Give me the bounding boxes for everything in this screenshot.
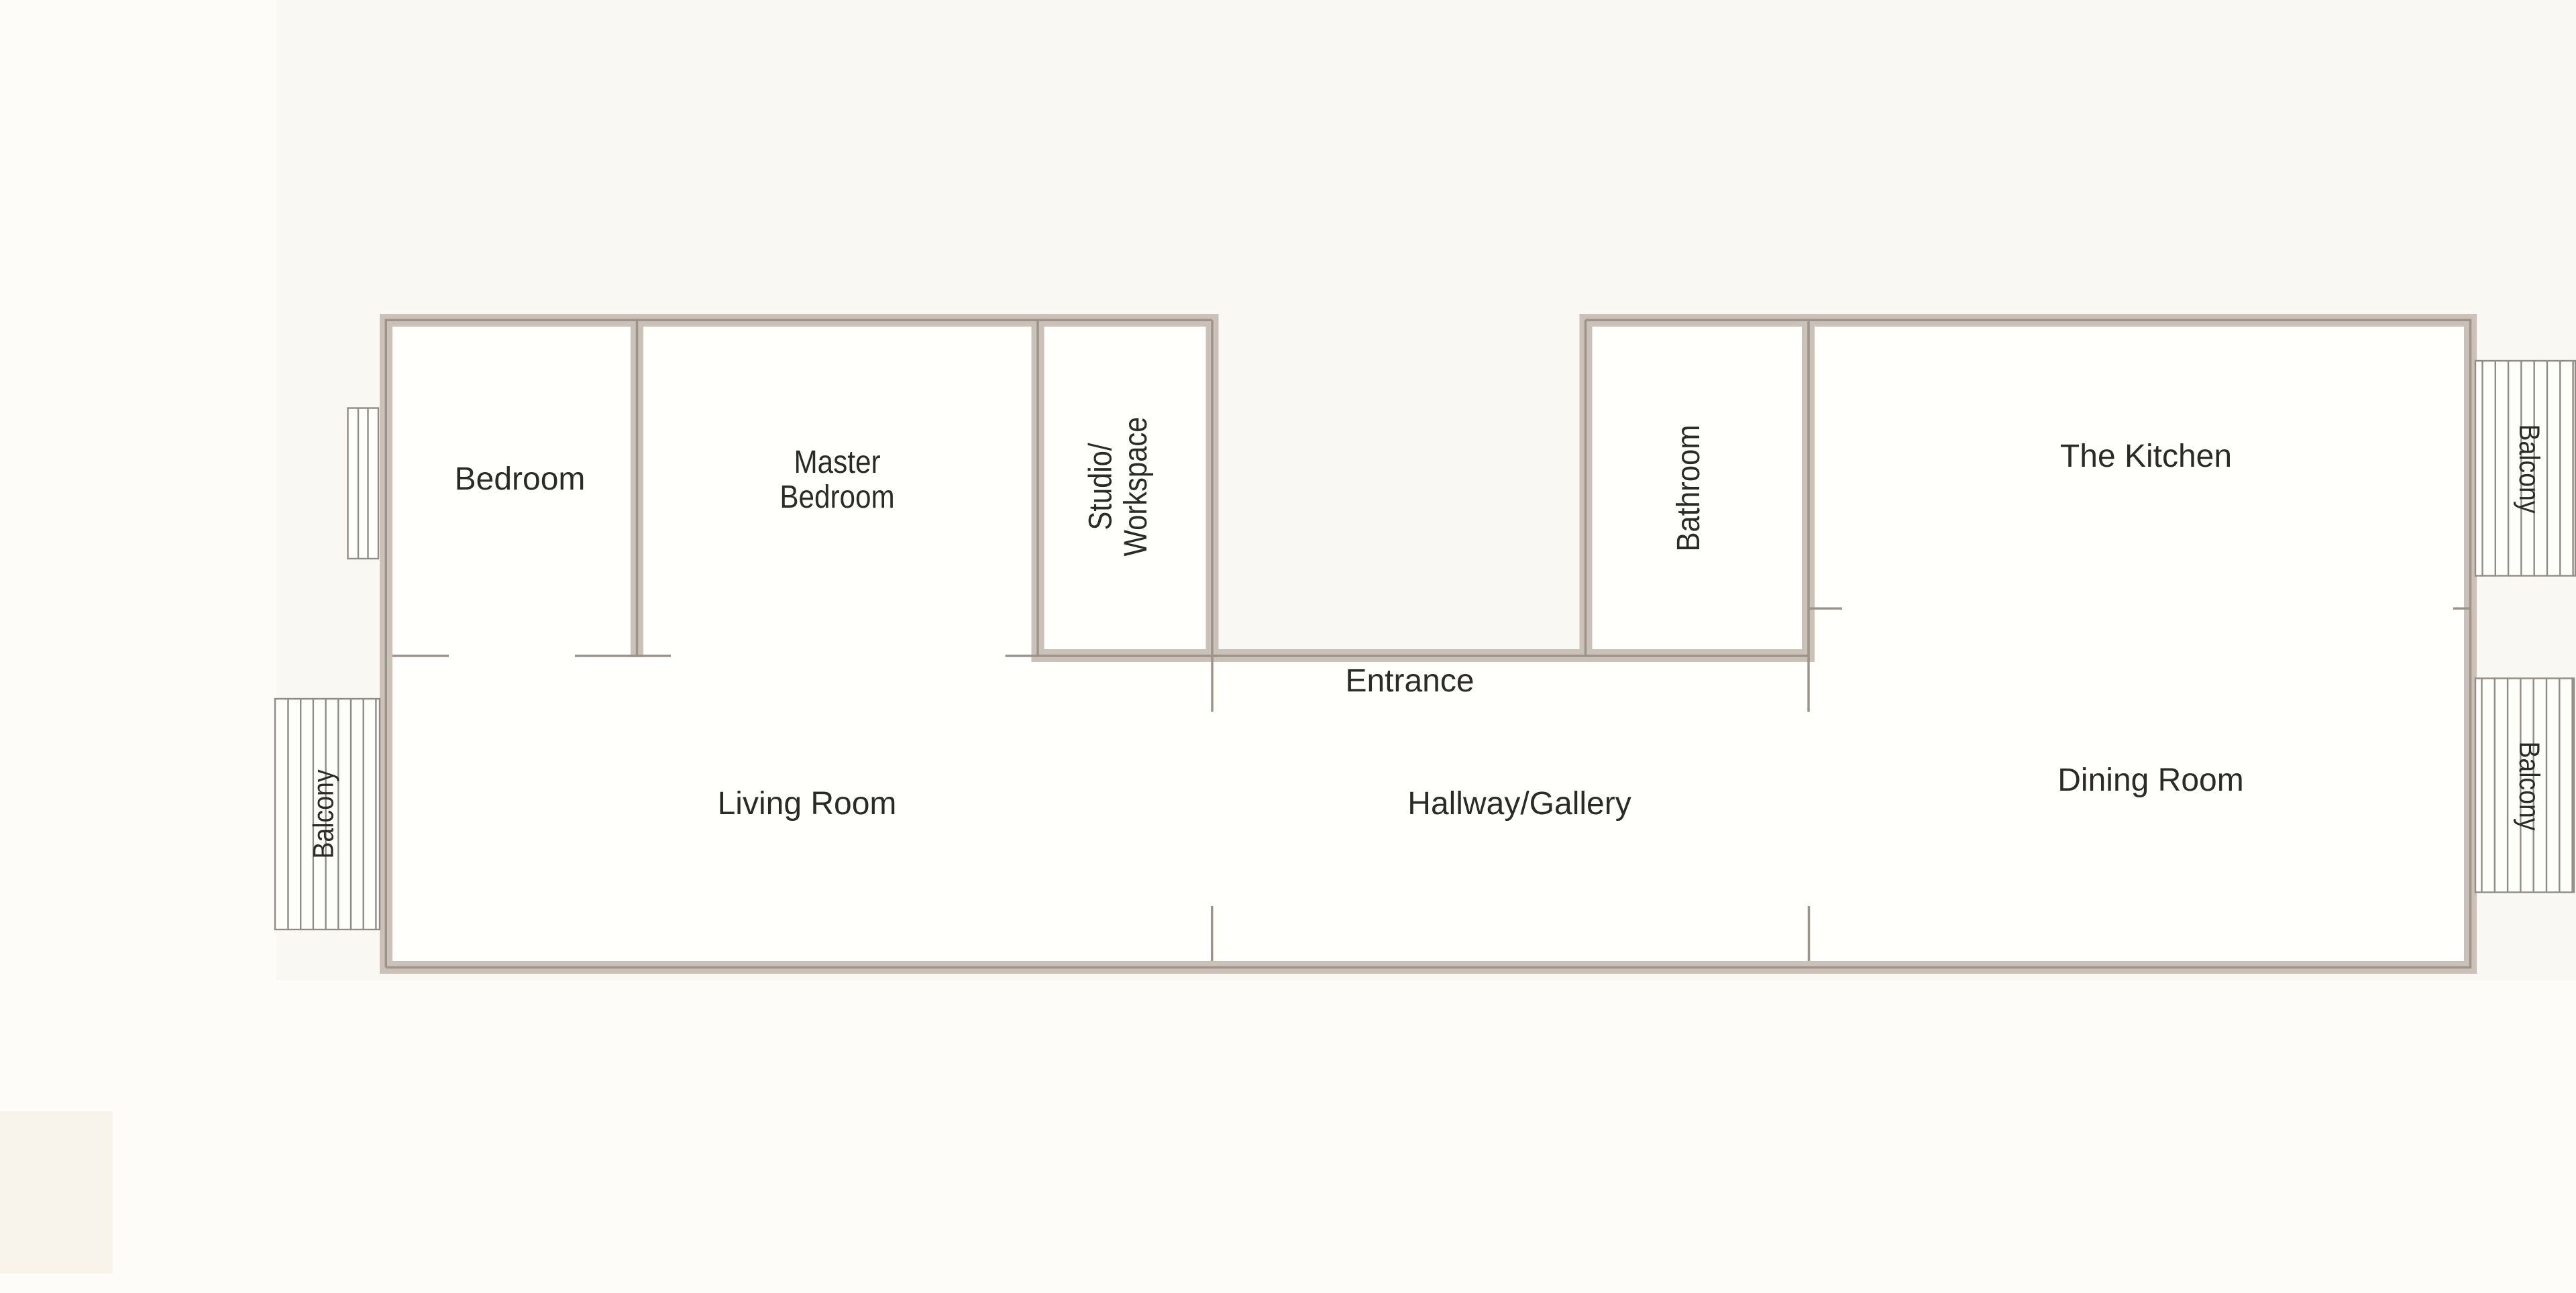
svg-text:Bathroom: Bathroom bbox=[1670, 425, 1706, 551]
svg-text:Balcony: Balcony bbox=[2513, 741, 2545, 831]
svg-text:Bedroom: Bedroom bbox=[780, 478, 894, 514]
svg-text:Master: Master bbox=[794, 443, 880, 480]
svg-text:Entrance: Entrance bbox=[1345, 663, 1474, 699]
svg-text:The Kitchen: The Kitchen bbox=[2060, 439, 2232, 474]
svg-text:Studio/: Studio/ bbox=[1082, 443, 1118, 530]
svg-text:Bedroom: Bedroom bbox=[455, 461, 586, 497]
svg-text:Balcony: Balcony bbox=[307, 769, 339, 859]
svg-text:Dining Room: Dining Room bbox=[2057, 763, 2243, 798]
svg-text:Balcony: Balcony bbox=[2513, 424, 2545, 514]
svg-text:Workspace: Workspace bbox=[1117, 416, 1153, 556]
svg-text:Hallway/Gallery: Hallway/Gallery bbox=[1407, 786, 1631, 822]
svg-text:Living Room: Living Room bbox=[718, 786, 897, 822]
